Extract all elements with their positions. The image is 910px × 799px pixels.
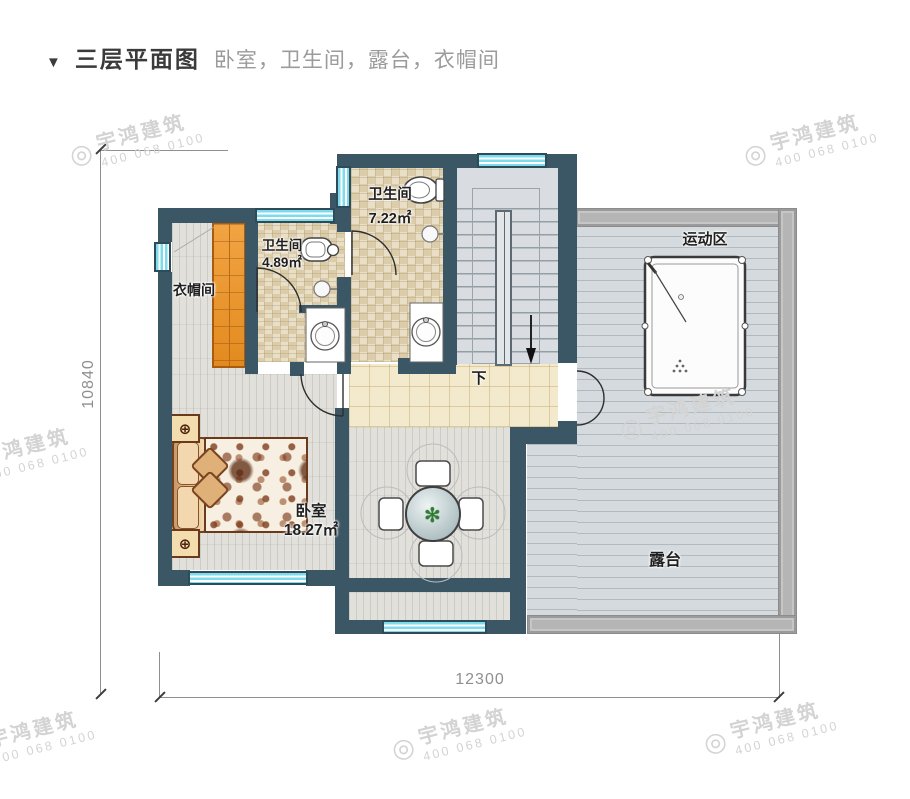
dim-width-value: 12300	[440, 671, 520, 689]
watermark: ◎ 宇鸿建筑400 068 0100	[0, 416, 90, 490]
wall	[245, 208, 258, 374]
watermark-logo-icon: ◎	[389, 732, 417, 763]
plan-title: 三层平面图	[75, 40, 200, 74]
wall	[158, 208, 255, 223]
bath-small-label: 卫生间 4.89㎡	[250, 238, 314, 272]
dim-height-value: 10840	[80, 353, 98, 415]
watermark-phone: 400 068 0100	[734, 718, 841, 757]
floor-plan-page: ▼ 三层平面图 卧室，卫生间，露台，衣帽间	[0, 0, 910, 799]
bedroom-name: 卧室	[272, 502, 350, 521]
bedroom-label: 卧室 18.27㎡	[272, 502, 350, 541]
wall	[337, 277, 351, 374]
wall	[158, 272, 172, 586]
bay-floor	[349, 592, 512, 620]
cloakroom-label: 衣帽间	[166, 282, 222, 300]
dim-ext-left	[159, 652, 160, 697]
watermark-brand: 宇鸿建筑	[0, 416, 87, 470]
bath-small-name: 卫生间	[250, 238, 314, 255]
watermark-logo-icon: ◎	[701, 726, 729, 757]
watermark-brand: 宇鸿建筑	[415, 696, 525, 750]
bay-window	[382, 620, 487, 634]
wall	[290, 362, 304, 376]
cloakroom-window	[154, 242, 171, 272]
wall	[335, 620, 382, 634]
plan-subtitle: 卧室，卫生间，露台，衣帽间	[214, 44, 500, 74]
nightstand: ⊕	[170, 529, 200, 558]
watermark: ◎ 宇鸿建筑400 068 0100	[65, 102, 207, 176]
wall	[443, 168, 457, 365]
sports-area-label: 运动区	[672, 231, 738, 250]
wall	[335, 408, 349, 578]
watermark-brand: 宇鸿建筑	[0, 699, 95, 753]
wall	[510, 427, 526, 634]
watermark-phone: 400 068 0100	[774, 130, 881, 169]
watermark-phone: 400 068 0100	[0, 444, 90, 483]
parapet-top	[575, 208, 797, 227]
wall	[487, 620, 512, 634]
dim-line-vertical	[100, 150, 101, 695]
dim-tick	[95, 143, 106, 154]
wall	[158, 570, 190, 586]
terrace-floor-ext	[527, 444, 577, 615]
bath-small-area: 4.89㎡	[250, 255, 314, 272]
dim-ext-top	[100, 150, 228, 151]
watermark-phone: 400 068 0100	[422, 724, 529, 763]
bedroom-area: 18.27㎡	[272, 521, 350, 540]
wall-thin	[299, 305, 345, 313]
wall	[558, 154, 577, 363]
bath-large-area: 7.22㎡	[355, 210, 425, 228]
dim-tick	[95, 688, 106, 699]
plant-icon: ✻	[424, 503, 441, 528]
dim-line-horizontal	[160, 697, 780, 698]
watermark: ◎ 宇鸿建筑400 068 0100	[0, 699, 98, 773]
terrace-label: 露台	[637, 551, 693, 571]
stair-window	[477, 153, 547, 168]
stair-handrail	[495, 210, 512, 366]
bath-small-window	[255, 208, 335, 223]
watermark-logo-icon: ◎	[741, 138, 769, 169]
bath-large-name: 卫生间	[355, 186, 425, 204]
watermark-phone: 400 068 0100	[0, 727, 98, 766]
nightstand: ⊕	[170, 414, 200, 443]
wall	[398, 358, 456, 374]
stairs-down-label: 下	[466, 370, 492, 389]
watermark-brand: 宇鸿建筑	[93, 102, 203, 156]
bedroom-window	[188, 571, 308, 585]
bath-large-window	[336, 166, 351, 208]
watermark: ◎ 宇鸿建筑400 068 0100	[387, 696, 529, 770]
dim-ext-right	[779, 634, 780, 697]
page-title: ▼ 三层平面图 卧室，卫生间，露台，衣帽间	[46, 40, 500, 74]
watermark-brand: 宇鸿建筑	[727, 690, 837, 744]
bath-large-label: 卫生间 7.22㎡	[355, 186, 425, 228]
watermark: ◎ 宇鸿建筑400 068 0100	[699, 690, 841, 764]
wall	[158, 208, 172, 242]
watermark-logo-icon: ◎	[67, 138, 95, 169]
watermark: ◎ 宇鸿建筑400 068 0100	[739, 102, 881, 176]
wall	[335, 578, 512, 592]
wall	[343, 154, 477, 168]
parapet-bottom	[527, 615, 797, 634]
watermark-brand: 宇鸿建筑	[767, 102, 877, 156]
triangle-marker-icon: ▼	[46, 54, 61, 71]
parapet-right	[778, 208, 797, 634]
